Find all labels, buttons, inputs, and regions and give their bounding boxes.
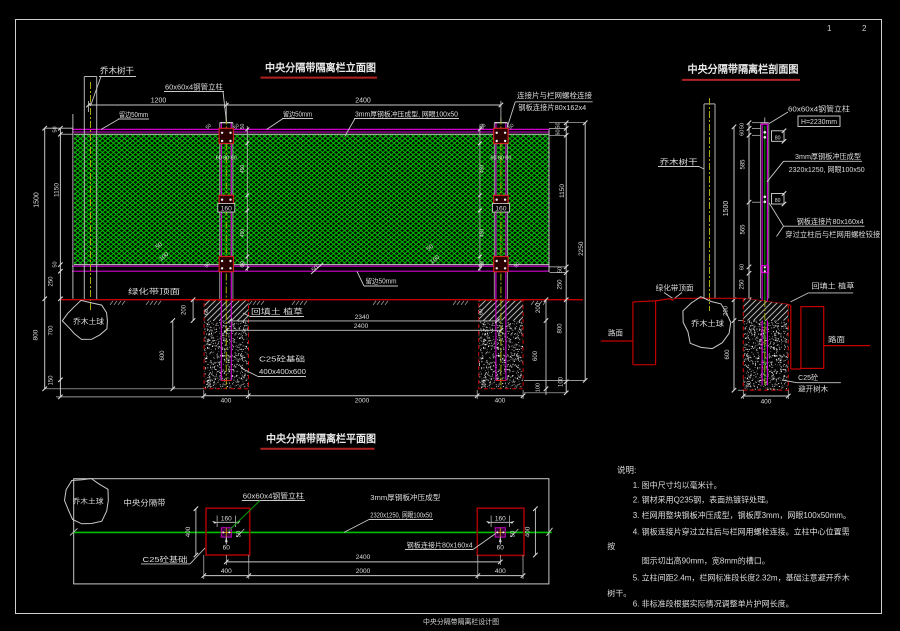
svg-text:C25砼基础: C25砼基础 xyxy=(259,355,305,364)
svg-text:绿化带顶面: 绿化带顶面 xyxy=(656,284,694,293)
svg-text:2400: 2400 xyxy=(356,554,371,561)
svg-text:60: 60 xyxy=(740,264,746,270)
svg-text:1500: 1500 xyxy=(34,192,41,208)
svg-text:50: 50 xyxy=(747,381,753,387)
svg-text:250: 250 xyxy=(740,279,746,290)
svg-text:60: 60 xyxy=(204,309,210,315)
svg-text:160: 160 xyxy=(495,205,507,212)
svg-text:80: 80 xyxy=(775,198,781,204)
svg-text:400: 400 xyxy=(495,398,506,405)
svg-text:按: 按 xyxy=(607,541,615,551)
svg-text:600: 600 xyxy=(725,349,731,360)
svg-text:1150: 1150 xyxy=(54,183,61,197)
svg-text:200: 200 xyxy=(536,302,542,313)
svg-text:160: 160 xyxy=(221,515,232,522)
svg-text:C25砼基础: C25砼基础 xyxy=(143,554,188,564)
svg-text:图示切出高90mm，宽8mm的槽口。: 图示切出高90mm，宽8mm的槽口。 xyxy=(642,556,770,566)
svg-text:2000: 2000 xyxy=(355,398,370,405)
svg-text:60x60x4钢管立柱: 60x60x4钢管立柱 xyxy=(165,82,223,92)
svg-text:565: 565 xyxy=(741,224,747,235)
svg-text:100: 100 xyxy=(207,380,213,389)
svg-text:450: 450 xyxy=(479,165,485,174)
svg-text:1: 1 xyxy=(827,24,832,33)
svg-text:800: 800 xyxy=(33,329,40,340)
svg-text:中央分隔带: 中央分隔带 xyxy=(124,498,166,508)
svg-text:60: 60 xyxy=(478,309,484,315)
svg-text:600: 600 xyxy=(533,350,539,361)
svg-text:2400: 2400 xyxy=(355,98,371,105)
svg-text:穿过立柱后与栏网用螺栓铰接: 穿过立柱后与栏网用螺栓铰接 xyxy=(785,229,880,239)
svg-text:250: 250 xyxy=(49,276,55,287)
svg-text:绿化带顶面: 绿化带顶面 xyxy=(128,287,180,296)
svg-text:400: 400 xyxy=(221,398,232,405)
svg-text:3. 栏网用整块钢板冲压成型，钢板厚3mm，网眼100x50: 3. 栏网用整块钢板冲压成型，钢板厚3mm，网眼100x50mm。 xyxy=(633,510,851,520)
svg-text:路面: 路面 xyxy=(608,329,623,338)
svg-text:800: 800 xyxy=(558,323,564,334)
svg-text:250: 250 xyxy=(558,279,564,290)
svg-text:中央分隔带隔离栏立面图: 中央分隔带隔离栏立面图 xyxy=(265,61,376,74)
svg-text:50: 50 xyxy=(556,122,562,128)
svg-text:400: 400 xyxy=(761,399,772,406)
svg-text:乔木土球: 乔木土球 xyxy=(73,317,104,326)
svg-text:450: 450 xyxy=(240,165,246,174)
svg-text:3mm厚钢板冲压成型: 3mm厚钢板冲压成型 xyxy=(370,493,440,502)
svg-text:200: 200 xyxy=(182,304,188,315)
svg-text:50: 50 xyxy=(53,261,59,267)
svg-text:钢板连接片80x160x4: 钢板连接片80x160x4 xyxy=(407,541,473,550)
svg-text:6. 非标准段根据实际情况调整单片护网长度。: 6. 非标准段根据实际情况调整单片护网长度。 xyxy=(633,599,794,609)
svg-text:60x60x4钢管立柱: 60x60x4钢管立柱 xyxy=(243,491,305,501)
svg-text:连接片与栏网螺栓连接: 连接片与栏网螺栓连接 xyxy=(517,90,592,100)
svg-text:2000: 2000 xyxy=(356,568,371,575)
svg-text:60: 60 xyxy=(556,129,562,135)
svg-text:1500: 1500 xyxy=(723,201,730,217)
svg-text:避开树木: 避开树木 xyxy=(798,385,828,394)
svg-text:2. 钢材采用Q235钢，表面热镀锌处理。: 2. 钢材采用Q235钢，表面热镀锌处理。 xyxy=(633,495,773,505)
svg-text:400: 400 xyxy=(495,568,506,575)
svg-text:60x60x4钢管立柱: 60x60x4钢管立柱 xyxy=(788,104,851,114)
svg-text:1150: 1150 xyxy=(559,184,566,198)
svg-text:2250: 2250 xyxy=(578,241,585,256)
svg-text:乔木土球: 乔木土球 xyxy=(73,497,104,506)
svg-text:3mm厚钢板冲压成型: 3mm厚钢板冲压成型 xyxy=(795,151,861,161)
svg-text:回填土 植草: 回填土 植草 xyxy=(811,282,854,291)
svg-text:2340: 2340 xyxy=(355,314,370,321)
svg-text:树干。: 树干。 xyxy=(607,588,631,598)
svg-text:400: 400 xyxy=(524,526,531,537)
svg-text:700: 700 xyxy=(49,325,55,336)
svg-text:中央分隔带隔离栏剖面图: 中央分隔带隔离栏剖面图 xyxy=(688,63,799,76)
svg-text:400x400x600: 400x400x600 xyxy=(259,369,306,376)
svg-text:60: 60 xyxy=(497,545,505,552)
svg-text:585: 585 xyxy=(741,159,747,170)
svg-text:乔木土球: 乔木土球 xyxy=(691,319,724,328)
svg-text:50: 50 xyxy=(240,124,246,130)
svg-text:60: 60 xyxy=(223,545,231,552)
svg-text:H=2230mm: H=2230mm xyxy=(801,117,837,126)
svg-text:400: 400 xyxy=(221,568,232,575)
svg-text:乔木树干: 乔木树干 xyxy=(660,157,699,167)
svg-text:3mm厚钢板冲压成型, 网眼100x50: 3mm厚钢板冲压成型, 网眼100x50 xyxy=(355,110,458,119)
svg-text:2320x1250, 网眼100x50: 2320x1250, 网眼100x50 xyxy=(370,511,432,520)
svg-text:中央分隔带隔离栏平面图: 中央分隔带隔离栏平面图 xyxy=(266,432,376,445)
svg-text:4. 钢板连接片穿过立柱后与栏网用螺栓连接。立柱中心位置需: 4. 钢板连接片穿过立柱后与栏网用螺栓连接。立柱中心位置需 xyxy=(633,527,850,537)
svg-text:1200: 1200 xyxy=(151,98,167,105)
svg-text:50: 50 xyxy=(53,126,59,132)
svg-text:2: 2 xyxy=(862,24,867,33)
svg-text:钢板连接片80x162x4: 钢板连接片80x162x4 xyxy=(518,102,586,112)
svg-text:钢板连接片80x160x4: 钢板连接片80x160x4 xyxy=(797,216,864,226)
svg-text:160: 160 xyxy=(495,515,506,522)
svg-text:留边50mm: 留边50mm xyxy=(119,110,148,119)
svg-text:100: 100 xyxy=(559,376,565,387)
svg-text:中央分隔带隔离栏设计图: 中央分隔带隔离栏设计图 xyxy=(423,617,499,626)
svg-text:乔木树干: 乔木树干 xyxy=(100,66,134,76)
svg-text:60: 60 xyxy=(740,130,746,136)
svg-text:160: 160 xyxy=(221,205,233,212)
svg-text:60 80 60: 60 80 60 xyxy=(490,155,511,161)
svg-text:400: 400 xyxy=(185,526,192,537)
svg-text:C25砼: C25砼 xyxy=(798,373,818,382)
svg-text:60 80 60: 60 80 60 xyxy=(216,155,237,161)
svg-text:说明:: 说明: xyxy=(617,465,636,475)
svg-text:100: 100 xyxy=(536,383,542,392)
svg-text:80: 80 xyxy=(775,135,781,141)
svg-text:1. 图中尺寸均以毫米计。: 1. 图中尺寸均以毫米计。 xyxy=(633,480,722,490)
svg-text:50: 50 xyxy=(740,123,746,129)
svg-text:100: 100 xyxy=(481,380,487,389)
svg-text:450: 450 xyxy=(479,229,485,238)
svg-text:留边50mm: 留边50mm xyxy=(283,110,312,119)
svg-text:600: 600 xyxy=(160,350,166,361)
svg-text:50: 50 xyxy=(558,267,564,273)
svg-text:150: 150 xyxy=(49,375,55,386)
svg-text:路面: 路面 xyxy=(828,335,845,344)
svg-text:2320x1250, 网眼100x50: 2320x1250, 网眼100x50 xyxy=(789,165,865,174)
svg-text:回填土 植草: 回填土 植草 xyxy=(251,307,303,316)
svg-text:5. 立柱间距2.4m，栏网标准段长度2.32m，基础注意避: 5. 立柱间距2.4m，栏网标准段长度2.32m，基础注意避开乔木 xyxy=(633,573,850,583)
svg-text:2400: 2400 xyxy=(354,323,369,330)
svg-text:450: 450 xyxy=(240,229,246,238)
svg-text:留边50mm: 留边50mm xyxy=(366,277,397,286)
